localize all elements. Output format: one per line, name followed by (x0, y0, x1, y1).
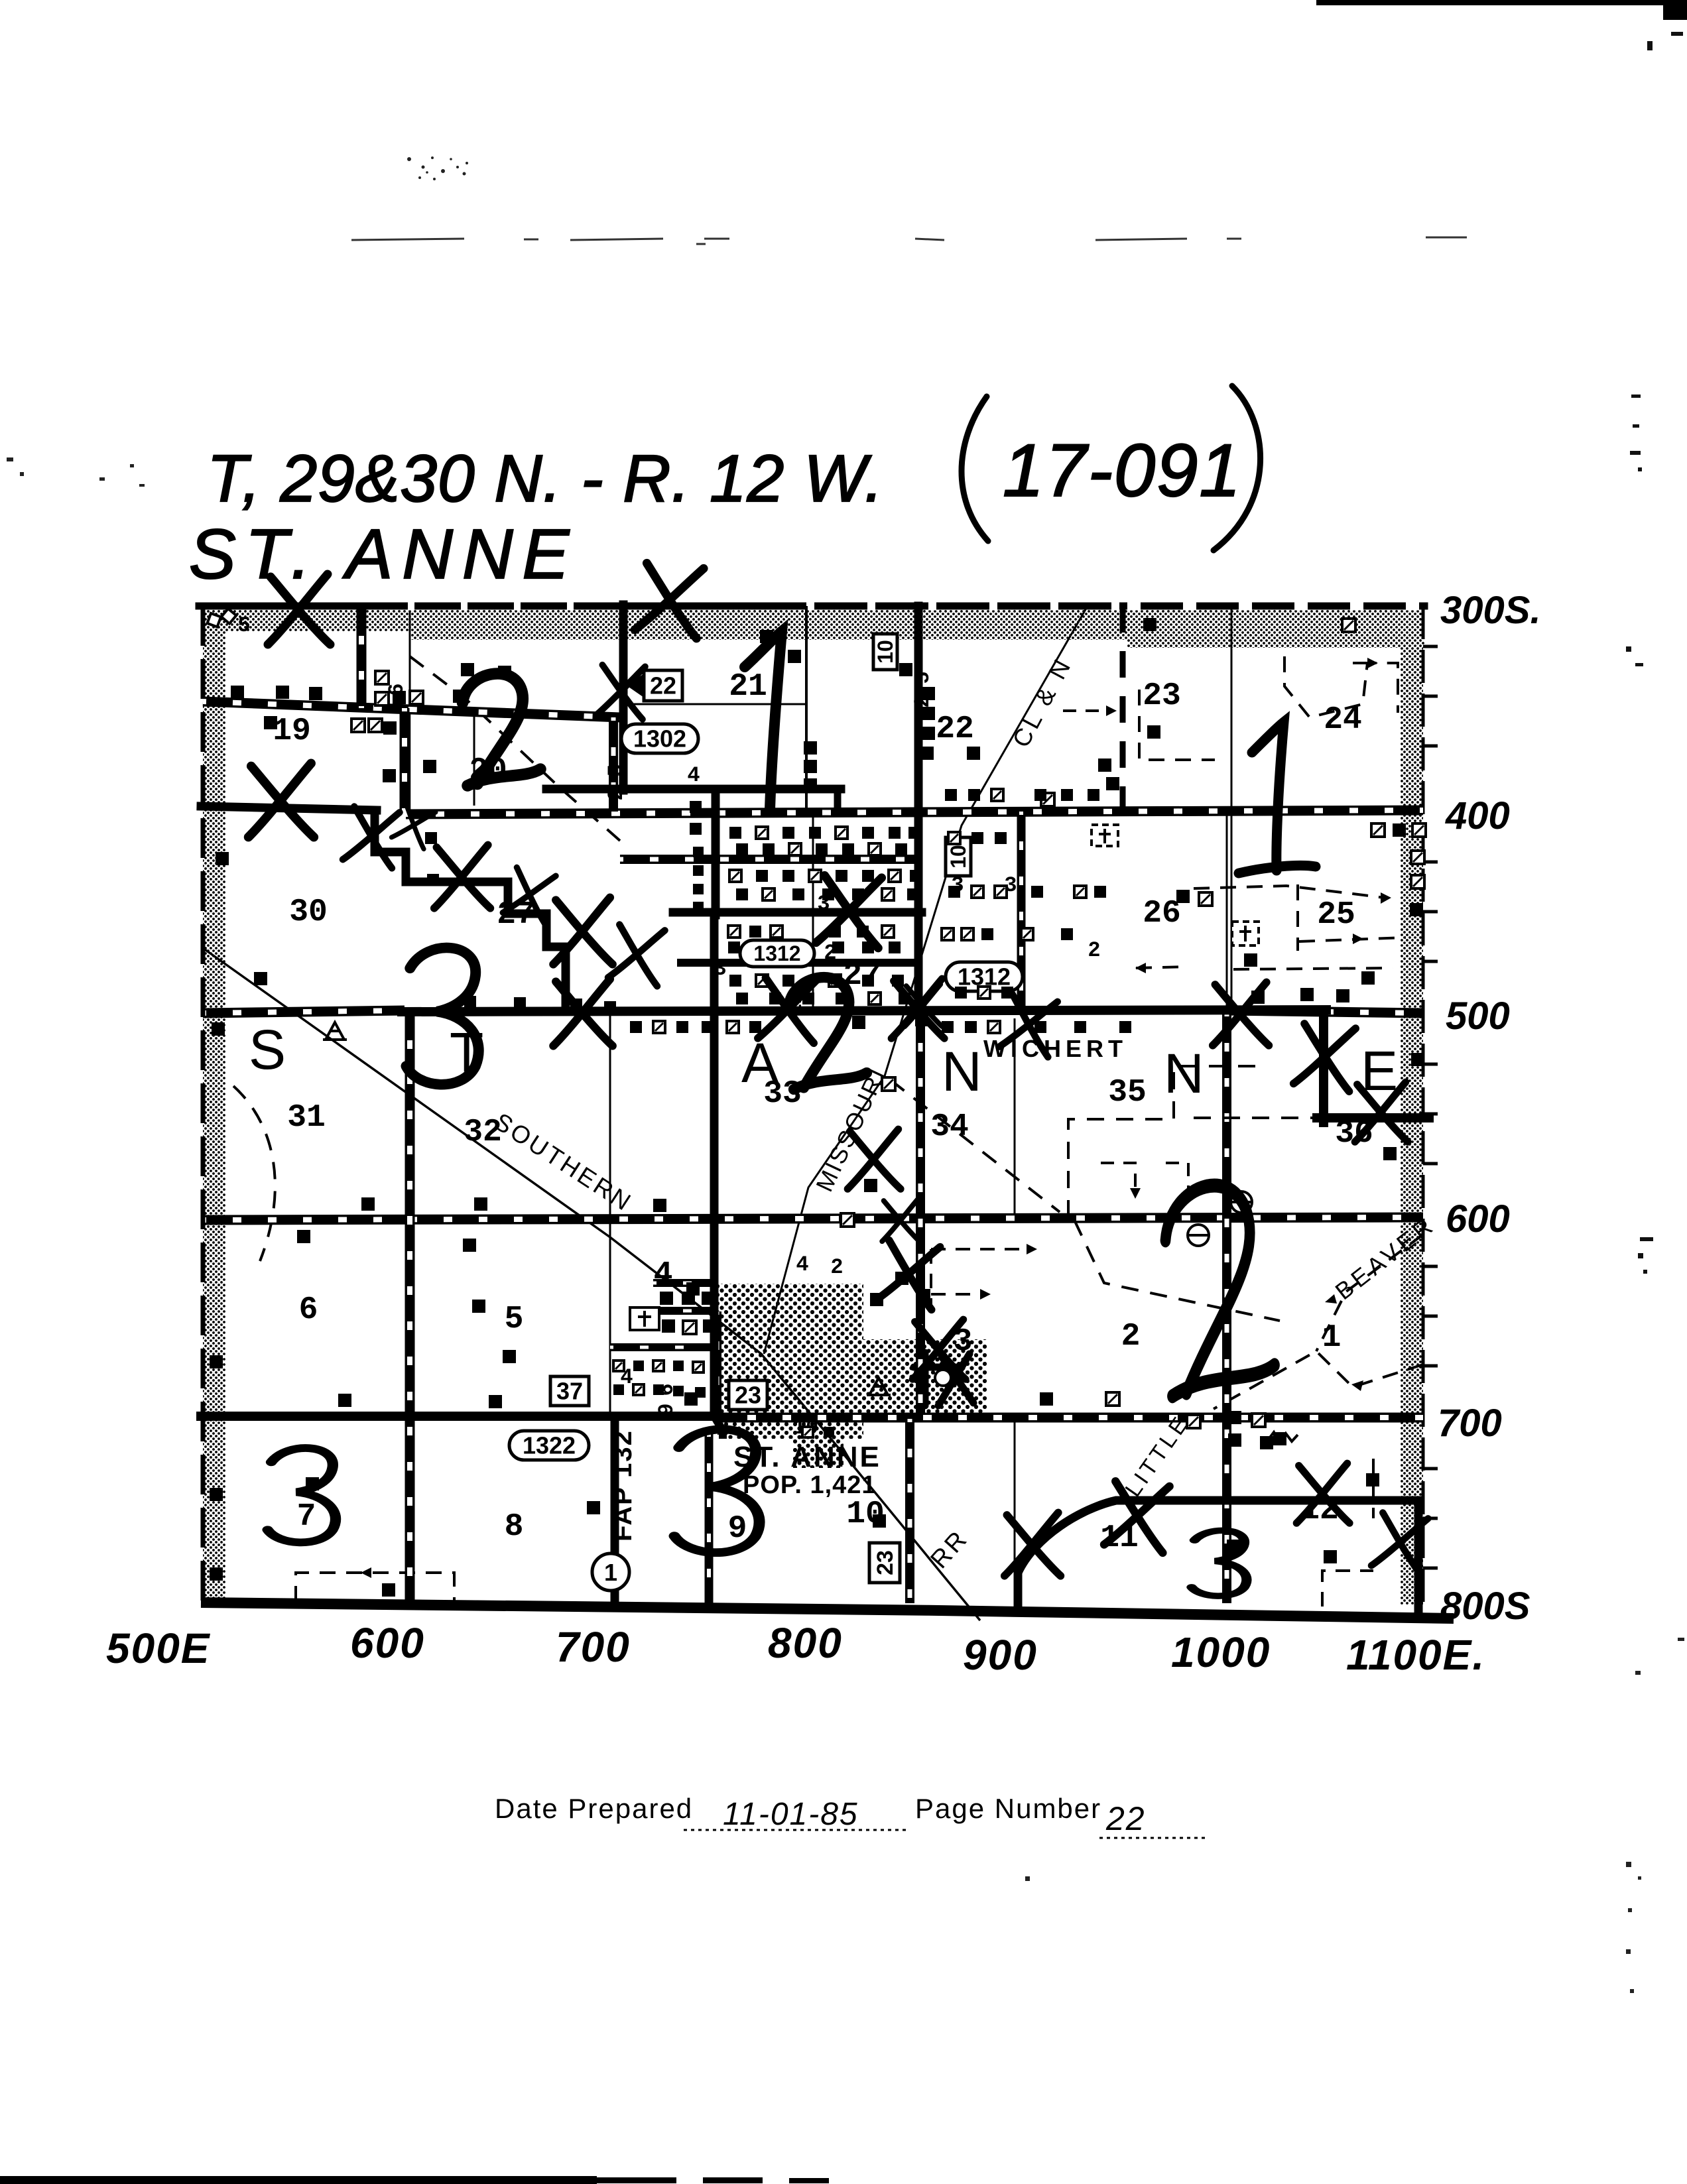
svg-text:23: 23 (735, 1382, 761, 1409)
svg-text:10: 10 (873, 640, 897, 664)
svg-text:ST. ANNE: ST. ANNE (189, 515, 578, 593)
svg-text:T, 29&30 N. - R. 12 W.: T, 29&30 N. - R. 12 W. (207, 442, 884, 516)
svg-text:10: 10 (946, 845, 970, 869)
svg-text:1302: 1302 (633, 725, 686, 753)
svg-text:23: 23 (873, 1550, 898, 1575)
svg-text:22: 22 (936, 711, 974, 747)
svg-text:600: 600 (350, 1619, 425, 1667)
svg-text:26: 26 (1143, 896, 1181, 932)
svg-text:36: 36 (1335, 1116, 1373, 1152)
svg-text:POP. 1,421: POP. 1,421 (743, 1471, 877, 1499)
svg-text:22: 22 (1105, 1800, 1146, 1837)
svg-text:9: 9 (655, 1403, 679, 1416)
svg-text:1000: 1000 (1171, 1628, 1271, 1676)
svg-text:6: 6 (299, 1292, 318, 1328)
svg-text:2: 2 (830, 1255, 843, 1280)
svg-text:21: 21 (729, 669, 767, 705)
svg-text:400: 400 (1445, 794, 1510, 837)
svg-text:5: 5 (237, 613, 250, 638)
svg-text:FAP 132: FAP 132 (608, 1429, 637, 1542)
svg-text:34: 34 (930, 1109, 969, 1145)
svg-text:35: 35 (1108, 1075, 1147, 1111)
svg-text:17-091: 17-091 (1003, 429, 1242, 512)
svg-text:24: 24 (1324, 702, 1362, 738)
svg-text:500E: 500E (106, 1624, 211, 1672)
svg-text:N: N (942, 1040, 982, 1103)
svg-text:500: 500 (1446, 995, 1510, 1038)
svg-text:4: 4 (654, 1257, 673, 1293)
svg-text:Page Number: Page Number (915, 1793, 1101, 1824)
svg-text:5: 5 (604, 764, 629, 776)
svg-text:1: 1 (1322, 1320, 1342, 1356)
svg-text:600: 600 (1446, 1197, 1510, 1241)
svg-text:1: 1 (604, 1559, 617, 1586)
svg-text:700: 700 (1438, 1402, 1502, 1445)
svg-text:1312: 1312 (753, 941, 800, 965)
svg-text:22: 22 (650, 672, 676, 699)
svg-text:25: 25 (1317, 897, 1355, 933)
svg-text:32: 32 (464, 1115, 502, 1150)
svg-text:5: 5 (910, 671, 935, 684)
svg-text:Date Prepared: Date Prepared (495, 1793, 693, 1824)
svg-text:7: 7 (297, 1499, 316, 1535)
svg-text:3: 3 (714, 957, 726, 981)
svg-text:19: 19 (273, 713, 311, 749)
svg-text:2: 2 (1121, 1319, 1141, 1355)
svg-text:800S: 800S (1440, 1585, 1531, 1628)
svg-text:2: 2 (604, 788, 629, 800)
svg-text:1100E.: 1100E. (1346, 1631, 1485, 1679)
svg-text:8: 8 (505, 1509, 524, 1545)
svg-text:700: 700 (556, 1623, 631, 1671)
svg-text:300S.: 300S. (1440, 589, 1541, 632)
svg-text:N: N (1164, 1042, 1204, 1105)
svg-text:4: 4 (796, 1252, 808, 1277)
svg-text:30: 30 (289, 894, 328, 930)
svg-text:S: S (249, 1018, 286, 1081)
svg-text:900: 900 (963, 1631, 1038, 1679)
svg-text:11-01-85: 11-01-85 (723, 1797, 859, 1832)
svg-text:5: 5 (505, 1302, 524, 1337)
svg-text:1322: 1322 (523, 1432, 576, 1459)
svg-text:2: 2 (1088, 938, 1100, 963)
svg-text:23: 23 (1143, 678, 1181, 714)
svg-text:4: 4 (687, 763, 700, 788)
svg-text:31: 31 (287, 1100, 326, 1136)
svg-text:37: 37 (556, 1378, 583, 1405)
svg-text:800: 800 (768, 1619, 843, 1667)
